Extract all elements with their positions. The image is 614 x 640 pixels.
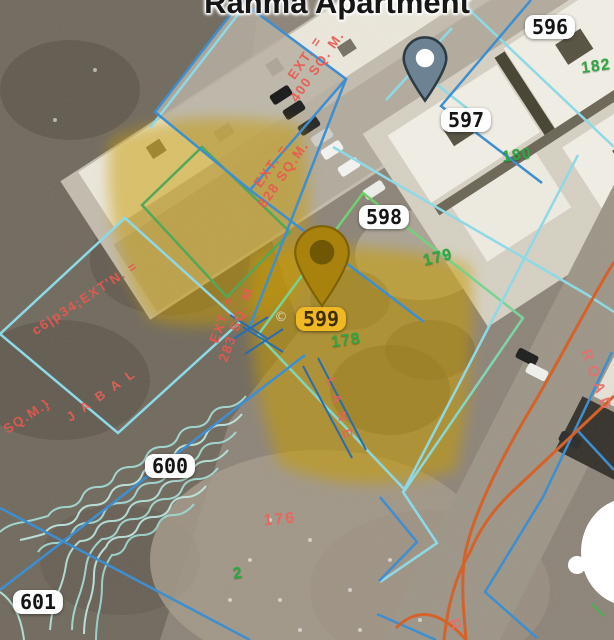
map-canvas[interactable]: EXT. = 400 SQ. M. EXT. = 828 SQ.M. EXT. … (0, 0, 614, 640)
plot-label-601[interactable]: 601 (13, 590, 63, 614)
plot-label-596[interactable]: 596 (525, 15, 575, 39)
page-title: Rahma Apartment (204, 0, 470, 21)
copyright-watermark: © (272, 309, 290, 327)
gold-location-pin-icon[interactable] (291, 224, 353, 308)
plot-label-598[interactable]: 598 (359, 205, 409, 229)
plot-label-597[interactable]: 597 (441, 108, 491, 132)
area-number-176: 176 (263, 510, 297, 531)
plot-label-599-selected[interactable]: 599 (296, 307, 346, 331)
gray-location-pin-icon[interactable] (402, 35, 448, 103)
plot-label-600[interactable]: 600 (145, 454, 195, 478)
